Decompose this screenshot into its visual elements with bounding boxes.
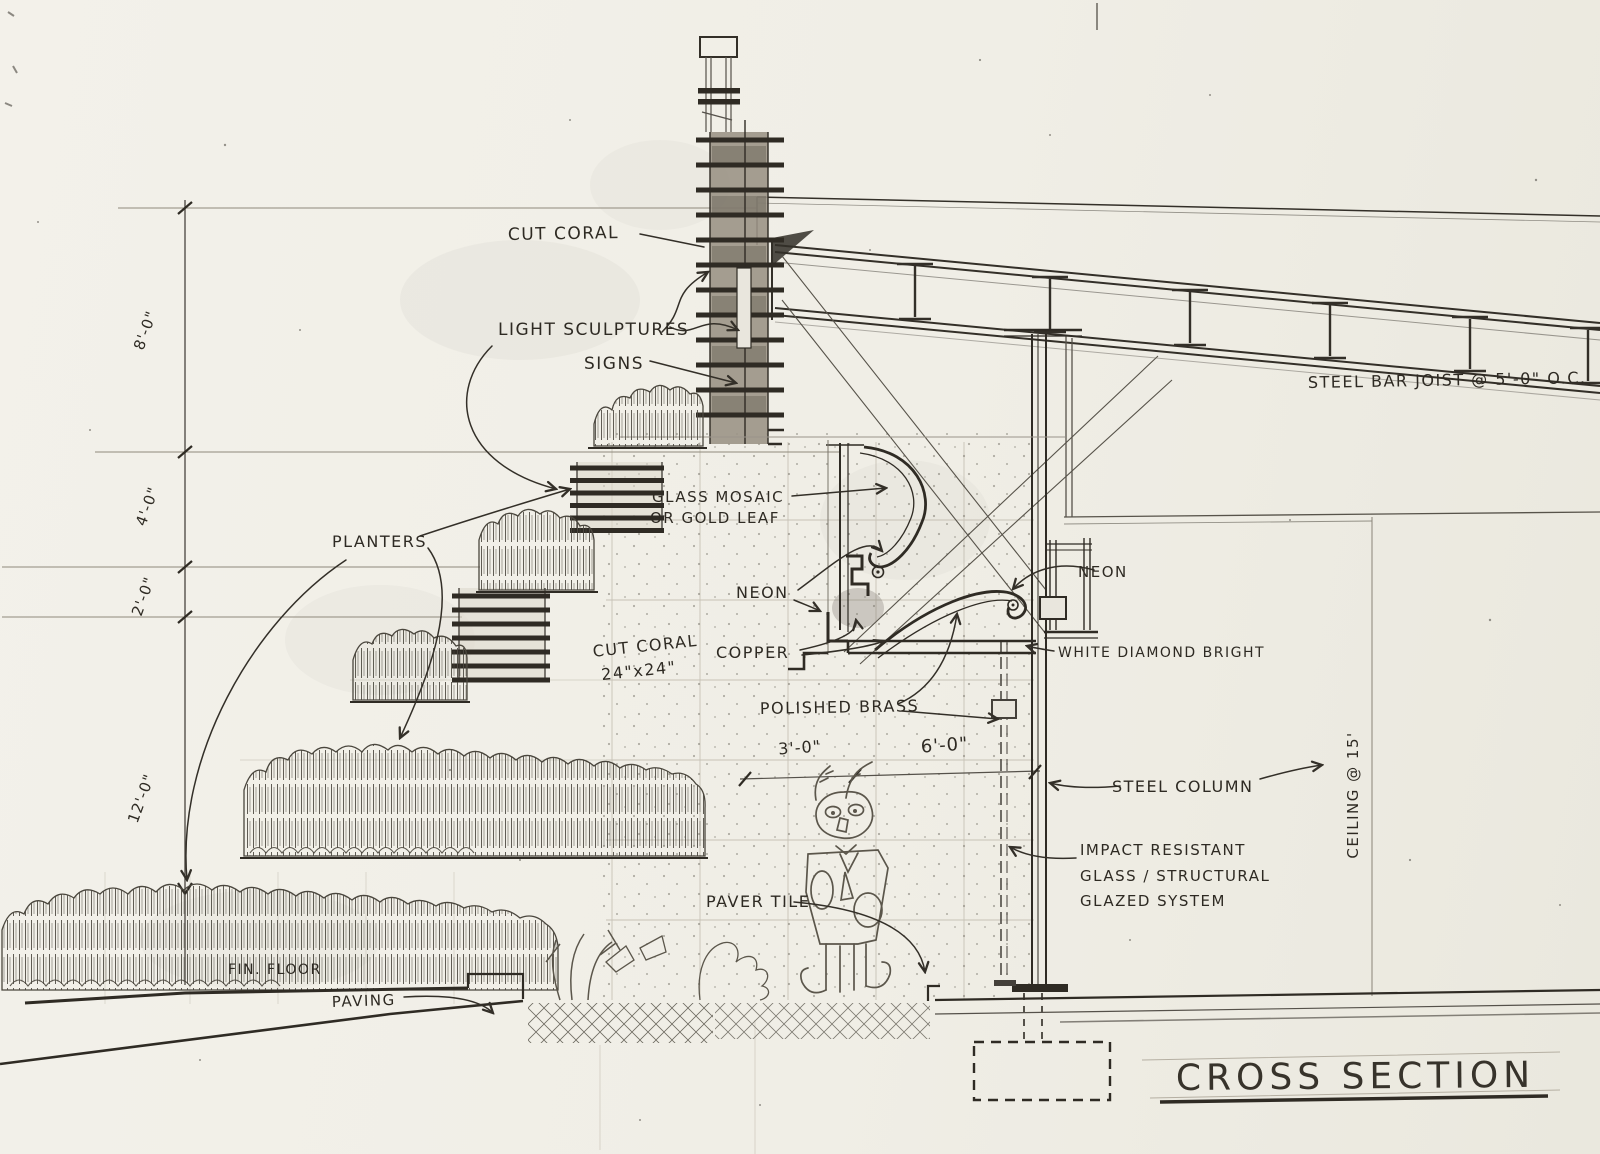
dim-2-0: 2'-0": [128, 574, 159, 618]
label-steel-column: STEEL COLUMN: [1112, 777, 1254, 796]
planter-soil-hatch: [528, 1003, 713, 1043]
label-light-sculptures: LIGHT SCULPTURES: [498, 320, 689, 340]
sign-tower: [696, 37, 784, 444]
dim-4-0: 4'-0": [132, 484, 163, 528]
scanned-sketch-page: CUT CORAL LIGHT SCULPTURES SIGNS STEEL B…: [0, 0, 1600, 1154]
label-cut-coral: CUT CORAL: [508, 223, 619, 245]
label-glass-mosaic-2: OR GOLD LEAF: [650, 509, 780, 527]
label-impact-2: GLASS / STRUCTURAL: [1080, 867, 1270, 885]
dim-6-0: 6'-0": [920, 733, 969, 757]
label-white-diamond-bright: WHITE DIAMOND BRIGHT: [1058, 645, 1265, 661]
label-fin-floor: FIN. FLOOR: [228, 962, 322, 978]
sign-panel-slot: [737, 268, 751, 348]
label-glass-mosaic-1: GLASS MOSAIC: [652, 488, 784, 506]
label-planters: PLANTERS: [332, 532, 427, 551]
label-signs: SIGNS: [584, 354, 644, 374]
label-impact-3: GLAZED SYSTEM: [1080, 892, 1226, 910]
title-block: CROSS SECTION: [1142, 1052, 1560, 1102]
dim-12-0: 12'-0": [124, 771, 158, 825]
footing-dashed-outline: [974, 1042, 1110, 1100]
dim-3-0: 3'-0": [778, 737, 822, 759]
label-neon-right: NEON: [1078, 563, 1128, 581]
cross-section-drawing: CUT CORAL LIGHT SCULPTURES SIGNS STEEL B…: [0, 0, 1600, 1154]
paving-slope-line: [0, 1001, 523, 1064]
label-polished-brass: POLISHED BRASS: [760, 696, 920, 718]
label-ceiling: CEILING @ 15': [1344, 731, 1362, 858]
label-impact-1: IMPACT RESISTANT: [1080, 841, 1246, 859]
label-neon-left: NEON: [736, 583, 789, 602]
label-paver-tile: PAVER TILE: [706, 892, 810, 911]
bar-joists: [897, 264, 1600, 383]
label-copper: COPPER: [716, 643, 789, 662]
drawing-title: CROSS SECTION: [1176, 1055, 1536, 1099]
dim-8-0: 8'-0": [130, 308, 161, 352]
label-paving: PAVING: [332, 991, 397, 1011]
